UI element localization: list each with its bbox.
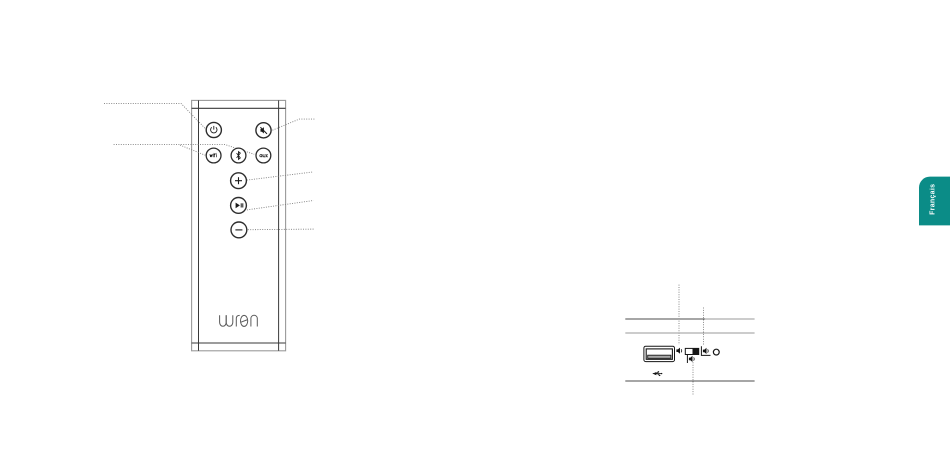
- svg-text:Français: Français: [930, 184, 937, 215]
